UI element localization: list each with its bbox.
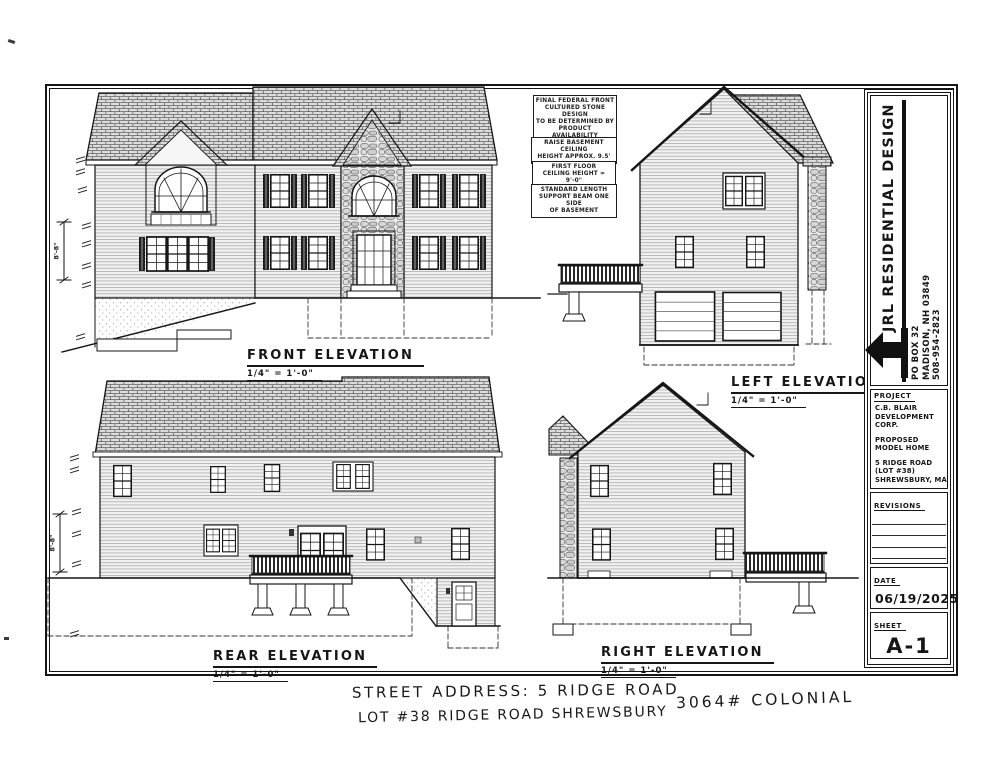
right-deck: [744, 553, 826, 613]
revisions-label: REVISIONS: [874, 502, 925, 511]
handwritten-street-address: STREET ADDRESS: 5 RIDGE ROAD: [352, 680, 679, 701]
date-value: 06/19/2025: [875, 591, 947, 606]
sheet-number: A-1: [871, 634, 947, 658]
left-deck: [548, 265, 642, 321]
scanner-speck: [4, 637, 9, 640]
front-elevation-drawing: [57, 87, 540, 352]
project-label: PROJECT: [874, 392, 915, 402]
front-elevation-label: FRONT ELEVATION 1/4" = 1'-0": [247, 344, 424, 381]
left-elevation-scale: 1/4" = 1'-0": [731, 396, 806, 408]
title-block-date-section: DATE 06/19/2025: [870, 567, 948, 609]
rear-elevation-drawing: [48, 377, 502, 648]
revision-row: [872, 548, 946, 560]
left-stone-chimney: [808, 166, 826, 290]
front-elevation-scale: 1/4" = 1'-0": [247, 369, 322, 381]
company-name: JRL RESIDENTIAL DESIGN: [881, 103, 897, 332]
rear-roof: [95, 377, 500, 455]
front-dimension-marker: [57, 157, 91, 340]
drawing-sheet: FINAL FEDERAL FRONT CULTURED STONE DESIG…: [0, 0, 993, 768]
date-label: DATE: [874, 577, 900, 586]
rear-vent: [415, 537, 421, 543]
revision-row: [872, 525, 946, 537]
rear-deck: [250, 556, 352, 615]
rear-grade-foundation: [48, 578, 500, 648]
company-address: PO BOX 32 MADISON, NH 03849 508-954-2823: [911, 275, 943, 380]
rear-dimension-marker: [53, 455, 81, 637]
sheet-label: SHEET: [874, 622, 906, 631]
right-elevation-scale: 1/4" = 1'-0": [601, 666, 676, 678]
front-height-dimension: 8'-8": [53, 242, 61, 259]
logo-arrow-icon: [864, 328, 910, 382]
title-block-revisions-section: REVISIONS: [870, 492, 948, 564]
right-elevation-label: RIGHT ELEVATION 1/4" = 1'-0": [601, 641, 774, 678]
rear-elevation-label: REAR ELEVATION 1/4" = 1'-0": [213, 645, 377, 682]
title-block-sheet-section: SHEET A-1: [870, 612, 948, 659]
right-elevation-drawing: [548, 383, 858, 635]
note-support-beam: STANDARD LENGTH SUPPORT BEAM ONE SIDE OF…: [531, 184, 617, 218]
revision-row: [872, 513, 946, 525]
rear-height-dimension: 8'-8": [49, 534, 57, 551]
revision-row: [872, 536, 946, 548]
rear-light-fixture: [289, 529, 294, 536]
right-stone-chimney: [560, 458, 577, 578]
title-block-project-section: PROJECT C.B. BLAIR DEVELOPMENT CORP. PRO…: [870, 389, 948, 489]
rear-elevation-scale: 1/4" = 1'-0": [213, 670, 288, 682]
